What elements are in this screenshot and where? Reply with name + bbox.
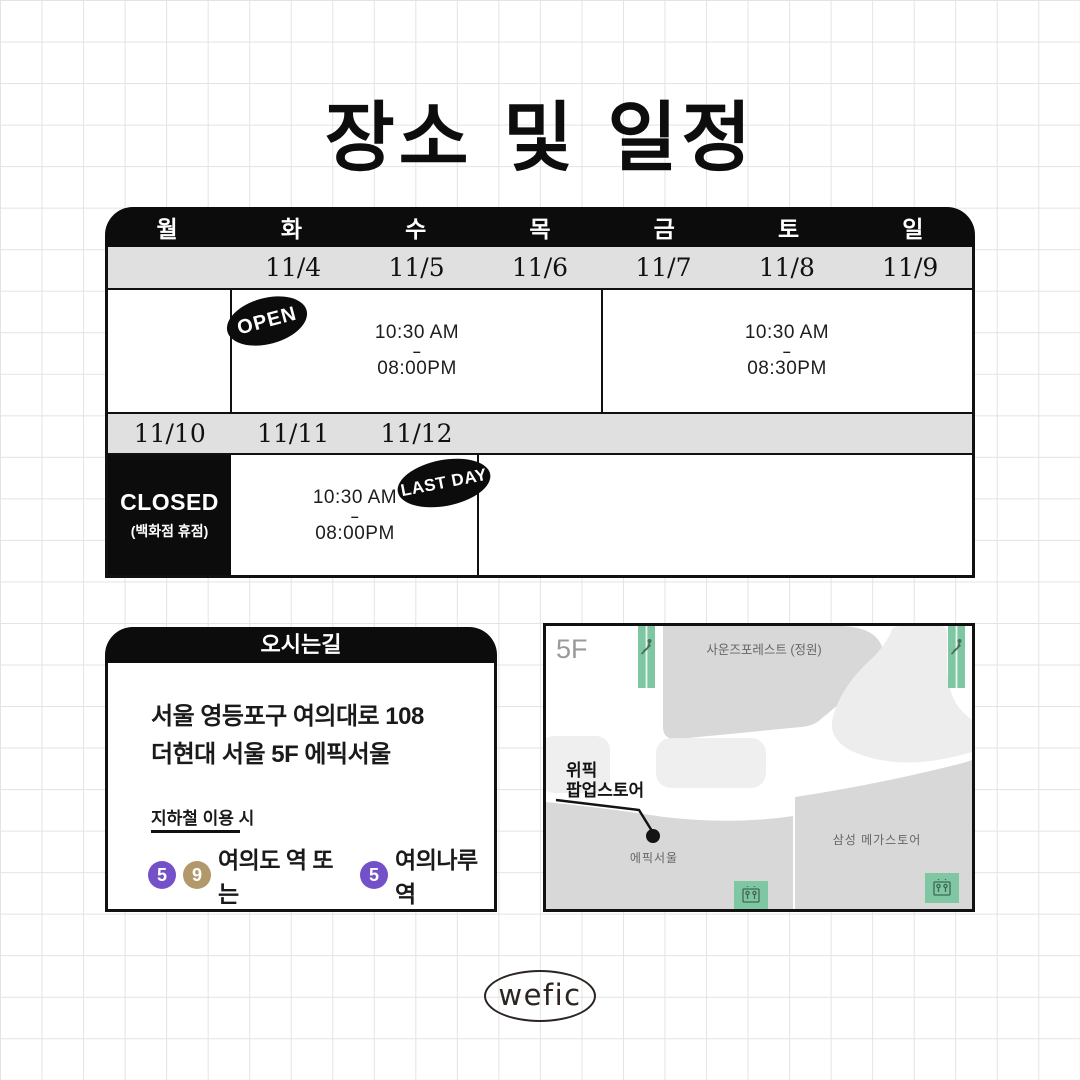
directions-body: 서울 영등포구 여의대로 108 더현대 서울 5F 에픽서울 지하철 이용 시… — [105, 663, 497, 912]
date-11-8: 11/8 — [725, 253, 848, 282]
station-yeouido: 여의도 역 또는 — [218, 841, 341, 909]
hours-end: 08:30PM — [702, 358, 872, 380]
closed-sublabel: (백화점 휴점) — [131, 521, 209, 541]
weekday-thu: 목 — [478, 210, 602, 244]
subway-note-underline — [151, 830, 240, 833]
directions-card: 오시는길 서울 영등포구 여의대로 108 더현대 서울 5F 에픽서울 지하철… — [105, 627, 497, 912]
address-line-2: 더현대 서울 5F 에픽서울 — [151, 734, 391, 769]
walkway-island — [656, 738, 766, 788]
date-11-9: 11/9 — [849, 253, 972, 282]
wefic-logo: wefic — [484, 970, 596, 1022]
hours-end: 08:00PM — [332, 358, 502, 380]
weekday-wed: 수 — [354, 210, 478, 244]
subway-note: 지하철 이용 시 — [151, 804, 254, 829]
date-row-week1: 11/4 11/5 11/6 11/7 11/8 11/9 — [108, 247, 972, 290]
date-row-week2: 11/10 11/11 11/12 — [108, 412, 972, 455]
floor-map: 5F 사운즈포레스트 (정원) 위픽 팝업스토어 에픽서울 삼성 메가스토어 — [543, 623, 975, 912]
elevator-icon — [734, 881, 768, 909]
column-divider — [601, 290, 603, 412]
elevator-icon — [925, 873, 959, 903]
closed-label: CLOSED — [120, 489, 219, 516]
floor-label: 5F — [556, 634, 588, 664]
wefic-logo-text: wefic — [498, 978, 581, 1012]
hours-end: 08:00PM — [270, 523, 440, 545]
hours-separator: – — [332, 344, 502, 358]
date-11-7: 11/7 — [602, 253, 725, 282]
escalator-icon — [638, 626, 655, 688]
date-11-4: 11/4 — [231, 253, 354, 282]
hours-separator: – — [702, 344, 872, 358]
week1-hours-row: OPEN 10:30 AM – 08:00PM 10:30 AM – 08:30… — [108, 290, 972, 412]
hours-separator: – — [270, 509, 440, 523]
schedule-table: 월 화 수 목 금 토 일 11/4 11/5 11/6 11/7 11/8 1… — [105, 207, 975, 578]
open-badge-label: OPEN — [235, 302, 300, 340]
last-day-badge-label: LAST DAY — [399, 465, 489, 501]
hours-fri-sun: 10:30 AM – 08:30PM — [702, 322, 872, 380]
garden-label: 사운즈포레스트 (정원) — [706, 643, 821, 657]
weekday-header-row: 월 화 수 목 금 토 일 — [105, 207, 975, 247]
popup-store-label-line2: 팝업스토어 — [566, 781, 644, 800]
page-title: 장소 및 일정 — [0, 76, 1080, 186]
directions-header: 오시는길 — [105, 627, 497, 663]
subway-line-5-badge: 5 — [148, 861, 176, 889]
schedule-body: 11/4 11/5 11/6 11/7 11/8 11/9 OPEN 10:30… — [105, 247, 975, 578]
weekday-sat: 토 — [726, 210, 850, 244]
popup-location-dot — [646, 829, 660, 843]
column-divider — [230, 290, 232, 412]
hours-start: 10:30 AM — [702, 322, 872, 344]
weekday-tue: 화 — [229, 210, 353, 244]
open-badge: OPEN — [221, 288, 312, 354]
weekday-fri: 금 — [602, 210, 726, 244]
subway-line-9-badge: 9 — [183, 861, 211, 889]
date-11-5: 11/5 — [355, 253, 478, 282]
weekday-sun: 일 — [851, 210, 975, 244]
samsung-label: 삼성 메가스토어 — [833, 833, 922, 847]
week2-hours-row: CLOSED (백화점 휴점) 10:30 AM – 08:00PM LAST … — [108, 455, 972, 575]
closed-cell: CLOSED (백화점 휴점) — [108, 455, 231, 575]
date-11-10: 11/10 — [108, 419, 231, 448]
hours-start: 10:30 AM — [332, 322, 502, 344]
date-11-12: 11/12 — [355, 419, 478, 448]
date-11-11: 11/11 — [231, 419, 354, 448]
floor-map-canvas: 5F 사운즈포레스트 (정원) 위픽 팝업스토어 에픽서울 삼성 메가스토어 — [546, 626, 972, 909]
subway-lines-row: 5 9 여의도 역 또는 5 여의나루 역 — [148, 841, 494, 909]
station-yeouinaru: 여의나루 역 — [395, 841, 494, 909]
address-line-1: 서울 영등포구 여의대로 108 — [151, 696, 424, 731]
weekday-mon: 월 — [105, 210, 229, 244]
escalator-icon — [948, 626, 965, 688]
popup-store-label-line1: 위픽 — [566, 761, 597, 780]
date-11-6: 11/6 — [478, 253, 601, 282]
hours-tue-thu: 10:30 AM – 08:00PM — [332, 322, 502, 380]
epik-label: 에픽서울 — [630, 851, 678, 865]
subway-line-5-badge: 5 — [360, 861, 388, 889]
